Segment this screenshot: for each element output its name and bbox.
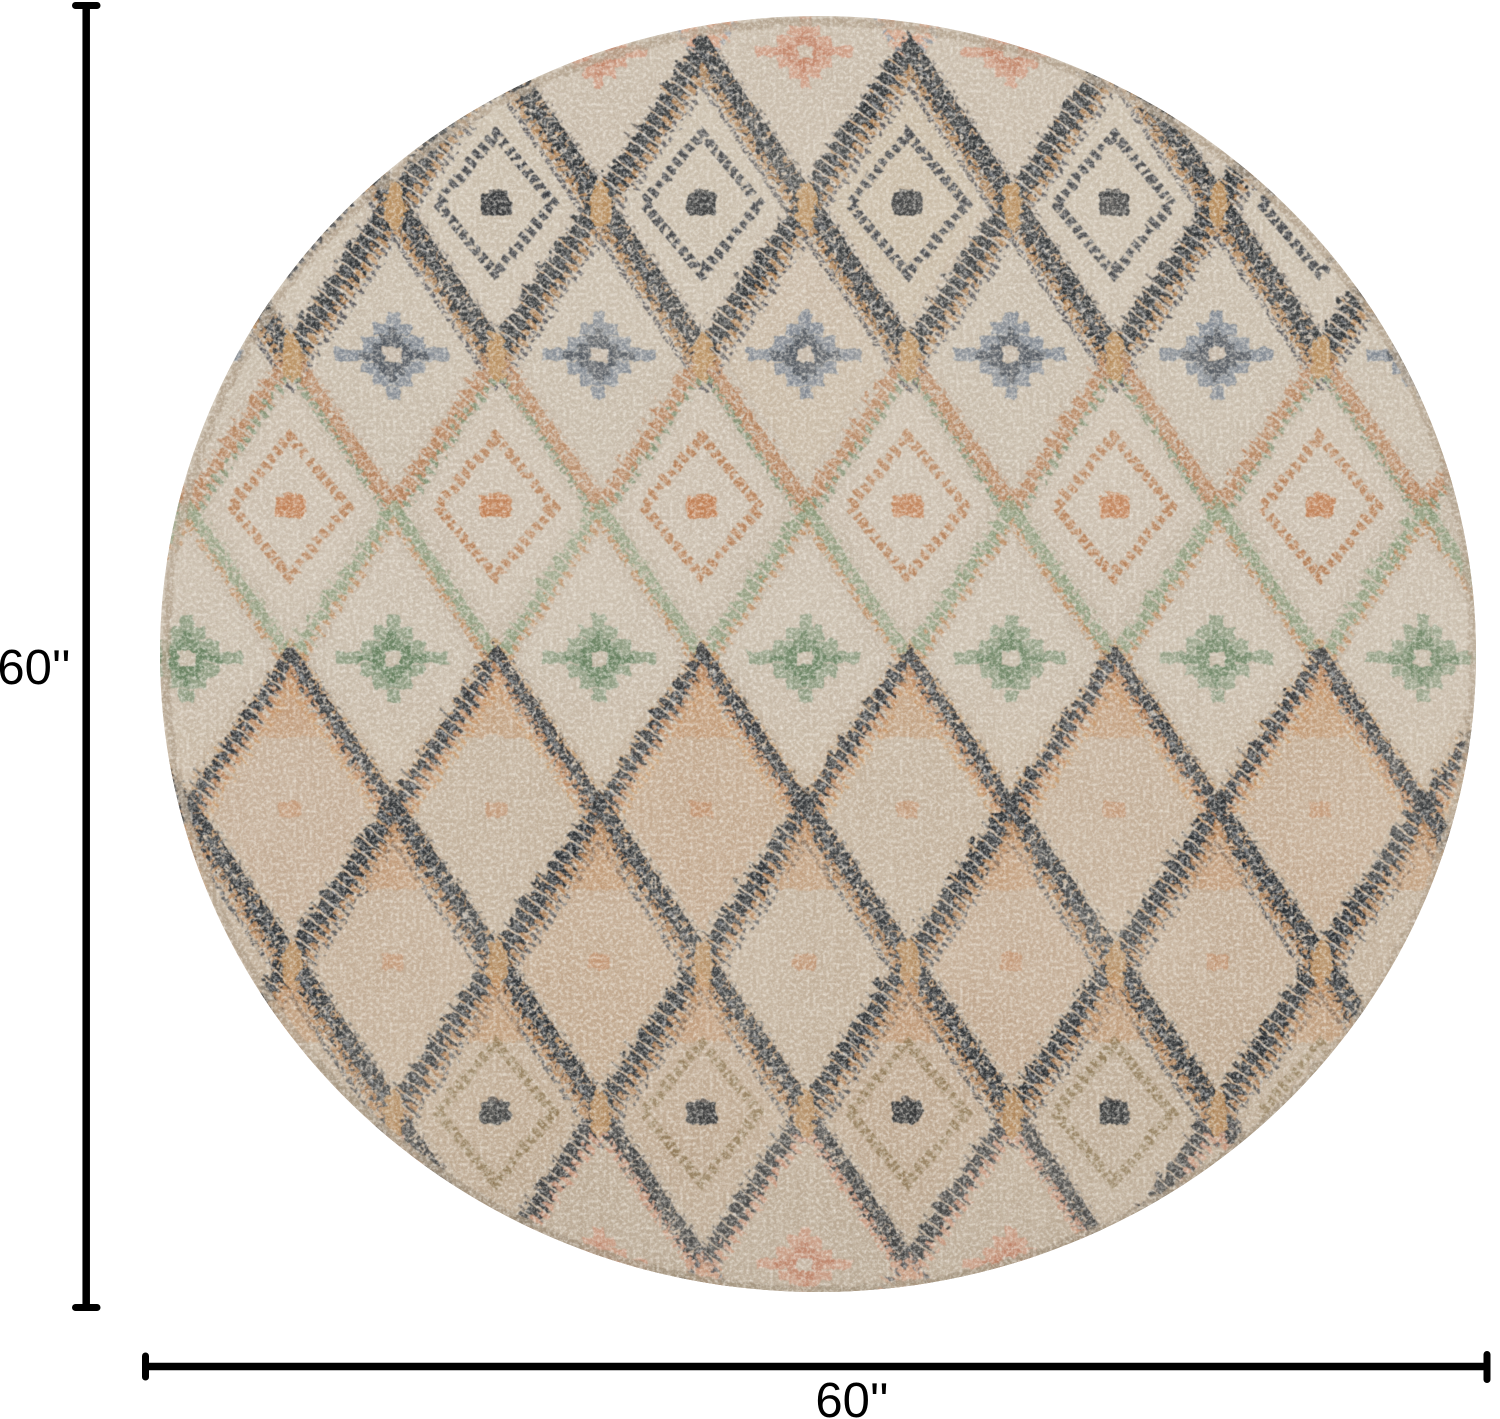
svg-text:60'': 60'' xyxy=(0,641,71,695)
svg-text:60'': 60'' xyxy=(815,1374,888,1419)
